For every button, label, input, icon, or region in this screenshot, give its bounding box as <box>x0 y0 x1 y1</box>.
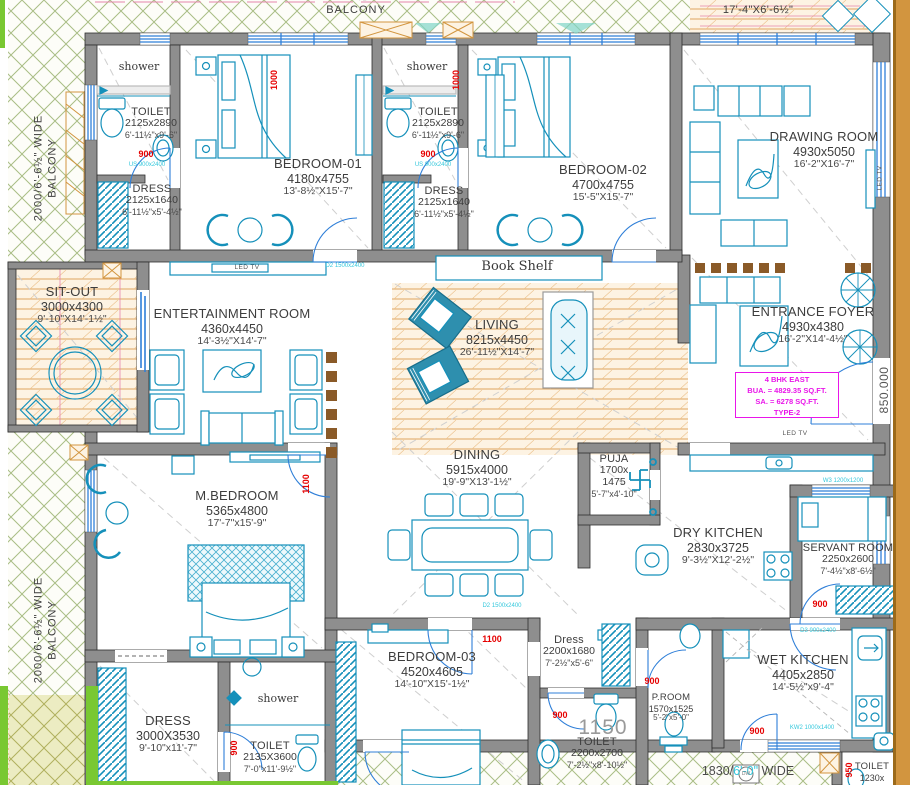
sofa-set-entertainment <box>150 350 322 445</box>
red-dim-1100-b3: 1100 <box>482 634 502 644</box>
room-label-toilet-br: TOILET1230x <box>855 762 889 783</box>
room-label-toilet-m: TOILET2135X36007'-0"x11'-9½" <box>243 740 297 774</box>
red-dim-1000-b: 1000 <box>451 70 461 90</box>
foyer-screen <box>695 263 871 273</box>
balcony-left-label: 2000/6'-6½" WIDEBALCONY <box>32 115 60 221</box>
room-label-toilet2: TOILET2125x28906'-11½"x9'-6" <box>412 106 464 140</box>
room-label-toilet1: TOILET2125x28906'-11½"x9'-6" <box>125 106 177 140</box>
shower-label-3: shower <box>258 692 299 705</box>
balcony-left-bottom-label: 2000/6'-6½" WIDEBALCONY <box>32 577 60 683</box>
room-label-bedroom2: BEDROOM-024700x475515'-5"X15'-7" <box>559 163 647 203</box>
led-tv-label-foyer: LED TV <box>782 430 807 437</box>
shower-label-1: shower <box>119 60 160 73</box>
red-dim-950-br: 950 <box>844 762 854 777</box>
book-shelf-label: Book Shelf <box>481 259 552 274</box>
tag-us-2: US 900x2400 <box>415 162 451 168</box>
red-dim-900-d3: 900 <box>552 710 567 720</box>
room-label-entertainment: ENTERTAINMENT ROOM4360x445014'-3½"X14'-7… <box>154 307 311 347</box>
tag-w3: W3 1200x1200 <box>823 478 863 484</box>
servant-bed <box>798 497 886 541</box>
tag-dw: DW <box>742 771 750 777</box>
dining-set <box>388 494 552 596</box>
led-tv-label-ent: LED TV <box>234 264 259 271</box>
red-dim-900-tm: 900 <box>229 740 239 755</box>
led-tv-label-drawing: LED TV <box>877 165 884 190</box>
red-dim-900-t2: 900 <box>420 149 435 159</box>
red-dim-1000-a: 1000 <box>269 70 279 90</box>
room-label-dining: DINING5915x400019'-9"X13'-1½" <box>442 448 511 488</box>
chairs-bedroom-02 <box>498 215 583 245</box>
room-label-sitout: SIT-OUT3000x43009'-10"X14'-1½" <box>37 285 106 325</box>
tag-kw2: KW2 1000x1400 <box>790 725 834 731</box>
room-label-mbedroom: M.BEDROOM5365x480017'-7"x15'-9" <box>195 489 278 529</box>
room-label-dress-m: DRESS3000X35309'-10"x11'-7" <box>136 714 200 754</box>
room-label-puja: PUJA1700x14755'-7"x4'-10" <box>591 453 636 499</box>
proom-fixtures <box>660 624 700 752</box>
tag-us-1: US 900x2400 <box>129 162 165 168</box>
red-dim-900-sr: 900 <box>812 599 827 609</box>
balcony-top-label: 2000/6'-6½" WIDEBALCONY <box>303 0 409 17</box>
level-850: 850.000 <box>877 367 891 414</box>
terrace-label: 5280x200017'-4"X6'-6½" <box>723 0 793 17</box>
room-label-dry-kitchen: DRY KITCHEN2830x37259'-3½"X12'-2½" <box>673 526 763 566</box>
info-box: 4 BHK EASTBUA. = 4829.35 SQ.FT. SA. = 62… <box>735 372 839 418</box>
red-dim-1100-mb: 1100 <box>301 474 311 494</box>
tag-d3: D3 900x2400 <box>800 628 836 634</box>
shower-label-2: shower <box>407 60 448 73</box>
room-label-dress2: DRESS2125x16406'-11½"x5'-4½" <box>414 185 474 219</box>
floor-plan: TOILET2125x28906'-11½"x9'-6" DRESS2125x1… <box>0 0 910 785</box>
screen-partition <box>326 352 337 458</box>
room-label-drawing: DRAWING ROOM4930x505016'-2"X16'-7" <box>770 130 879 170</box>
room-label-bedroom3: BEDROOM-034520x460514'-10"X15'-1½" <box>388 650 476 690</box>
room-label-servant: SERVANT ROOM2250x26007'-4½"x8'-6½" <box>803 542 893 576</box>
red-dim-900-t1: 900 <box>138 149 153 159</box>
red-dim-900-wk: 900 <box>749 726 764 736</box>
room-label-bedroom1: BEDROOM-014180x475513'-8½"X15'-7" <box>274 157 362 197</box>
console-living <box>543 292 593 388</box>
room-label-proom: P.ROOM1570x15255'-2"x5'-0" <box>649 693 694 723</box>
room-label-dress3: Dress2200x16807'-2½"x5'-6" <box>543 634 595 668</box>
chairs-bedroom-01 <box>208 215 293 245</box>
room-label-living: LIVING8215x445026'-11½"X14'-7" <box>460 318 534 358</box>
room-label-foyer: ENTRANCE FOYER4930x438016'-2"X14'-4½" <box>752 305 875 345</box>
room-label-dress1: DRESS2125x16406'-11½"x5'-4½" <box>122 183 182 217</box>
room-label-wet-kitchen: WET KITCHEN4405x285014'-5½"x9'-4" <box>757 653 849 693</box>
room-label-toilet3: TOILET2200x27007'-2½"x8'-10½" <box>567 736 627 770</box>
red-dim-900-pr: 900 <box>644 676 659 686</box>
tag-d2-a: D2 1500x2400 <box>325 263 364 269</box>
tag-d2-b: D2 1500x2400 <box>482 603 521 609</box>
dim-1150: 1150 <box>578 716 627 740</box>
